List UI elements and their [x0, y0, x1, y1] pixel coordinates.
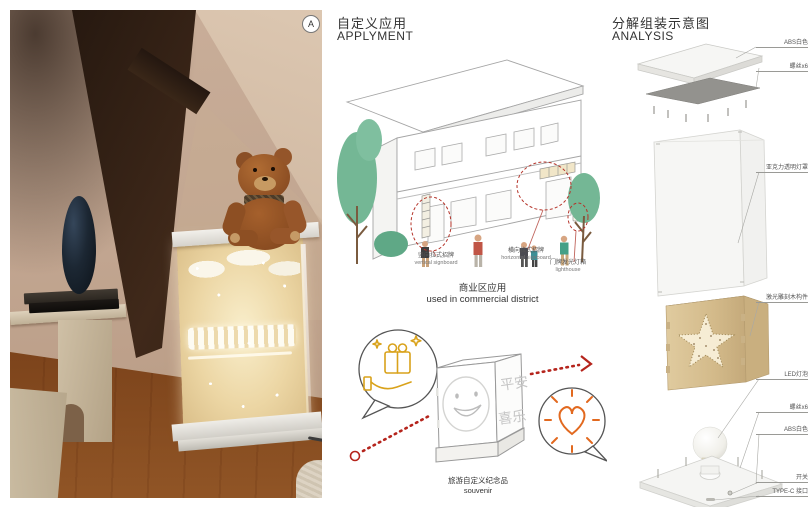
- screw-plate: [646, 78, 760, 122]
- teddy-paw-right: [290, 231, 300, 241]
- side-table-left-slab: [10, 388, 67, 498]
- heart-bubble: [539, 388, 607, 461]
- window: [486, 190, 511, 222]
- building-illustration: [335, 56, 600, 268]
- cube-front: [437, 362, 497, 448]
- window: [442, 143, 462, 165]
- part-label-led-bulb: LED灯泡: [756, 372, 808, 380]
- cube-right: [495, 354, 523, 442]
- type-c-port: [706, 498, 715, 501]
- power-switch: [728, 491, 732, 495]
- label-vertical-signboard: 竖向拉式招牌 vertical signboard: [400, 253, 472, 267]
- part-label-switch: 开关: [756, 475, 808, 483]
- window: [415, 148, 435, 170]
- engraving-stars: [183, 248, 303, 422]
- souvenir-illustration: 平安 喜乐: [335, 328, 607, 474]
- gift-bubble: [359, 330, 437, 418]
- teddy-paw-left: [230, 233, 240, 243]
- leader-lighthouse: [574, 231, 576, 262]
- person-red-top: [474, 235, 483, 268]
- window: [486, 134, 506, 156]
- annotation-badge-label: A: [308, 19, 314, 29]
- window: [514, 128, 534, 150]
- window: [451, 197, 476, 229]
- teddy-bear: [228, 148, 306, 244]
- part-label-laser-wood: 激光雕刻木构件: [756, 295, 808, 303]
- vase: [62, 196, 96, 294]
- door: [428, 204, 444, 243]
- part-label-acrylic-shade: 亚克力透明灯罩: [756, 165, 808, 173]
- label-lighthouse: 门牌发光灯箱 lighthouse: [538, 260, 598, 274]
- wood-body: [666, 296, 769, 390]
- vertical-signboard: [422, 194, 430, 238]
- window: [541, 123, 558, 145]
- applyment-title-en: APPLYMENT: [337, 29, 413, 43]
- teddy-nose: [262, 177, 268, 181]
- part-label-type-c: TYPE-C 接口: [756, 489, 808, 497]
- cube-side-text-1: 平安: [499, 373, 529, 393]
- flow-start-marker: [351, 452, 360, 461]
- acrylic-shade: [654, 130, 767, 296]
- part-label-abs-base: ABS白色: [756, 427, 808, 435]
- souvenir-caption: 旅游自定义纪念品 souvenir: [408, 476, 548, 496]
- top-lid: [638, 44, 762, 84]
- annotation-badge: A: [302, 15, 320, 33]
- product-photo: A: [10, 10, 322, 498]
- teddy-eye-left: [253, 168, 257, 172]
- souvenir-cube: [436, 354, 524, 462]
- part-label-abs-top: ABS白色: [756, 40, 808, 48]
- arrowhead-icon: [581, 356, 591, 371]
- teddy-eye-right: [271, 167, 275, 171]
- design-board: A 自定义应用 APPLYMENT: [0, 0, 810, 507]
- part-label-screws-base: 螺丝x6: [756, 405, 808, 413]
- part-label-screws-top: 螺丝x6: [756, 64, 808, 72]
- commercial-caption: 商业区应用 used in commercial district: [405, 283, 560, 305]
- exploded-view: [610, 38, 810, 507]
